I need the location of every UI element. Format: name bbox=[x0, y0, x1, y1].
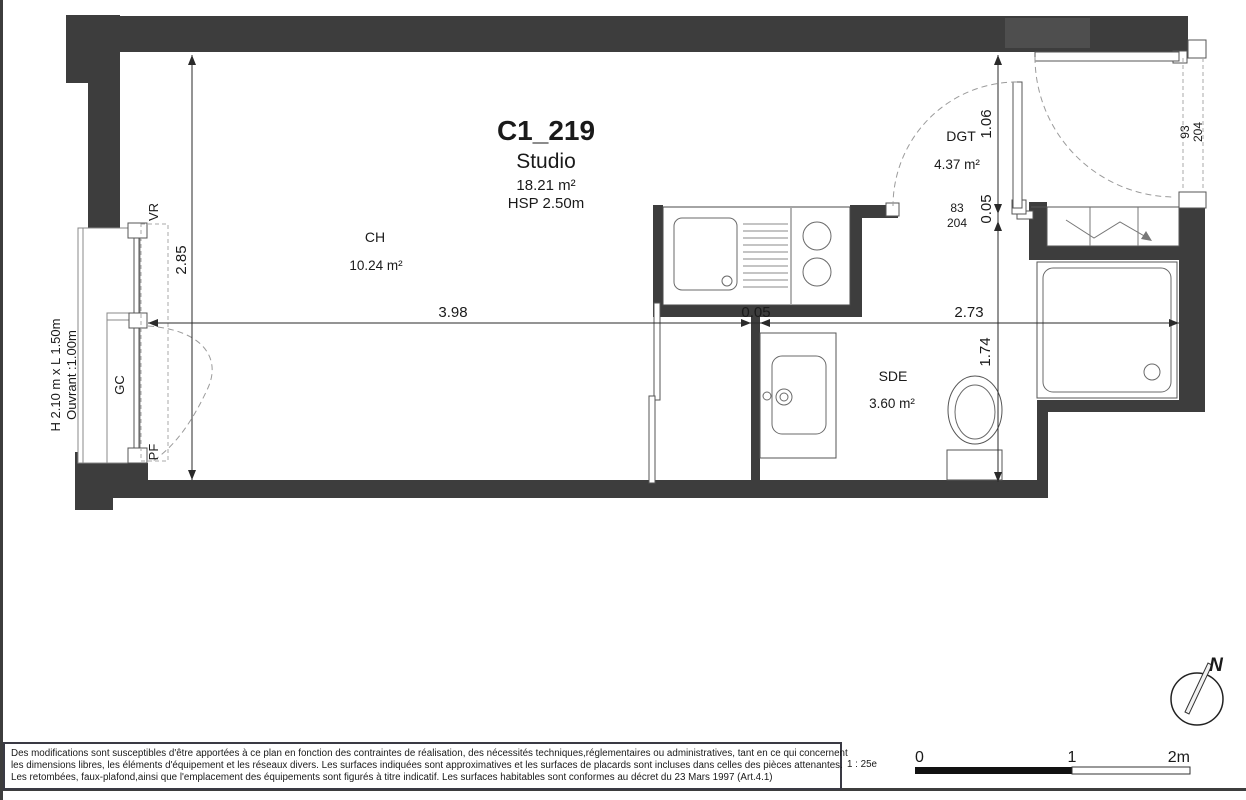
dgt-door bbox=[886, 82, 1033, 219]
dim-partition: 0.05 bbox=[741, 304, 770, 321]
closet-wall bbox=[1045, 246, 1179, 260]
dimension-labels: 2.85 3.98 0.05 2.73 1.06 0.05 1.74 bbox=[173, 109, 995, 366]
unit-id-label: C1_219 bbox=[497, 115, 595, 146]
dgt-door-width: 83 bbox=[950, 201, 964, 215]
scale-tick-2: 2m bbox=[1168, 749, 1190, 766]
floor-plan-drawing: C1_219 Studio 18.21 m² HSP 2.50m CH 10.2… bbox=[0, 0, 1246, 800]
scale-tick-1: 1 bbox=[1068, 749, 1077, 766]
door-jamb bbox=[1188, 40, 1206, 58]
sliding-door-leaf bbox=[654, 303, 660, 400]
disclaimer-line: Des modifications sont susceptibles d'êt… bbox=[11, 748, 848, 759]
title-block: C1_219 Studio 18.21 m² HSP 2.50m bbox=[497, 115, 595, 212]
entry-door-height: 204 bbox=[1191, 122, 1205, 142]
shower-tray bbox=[1037, 262, 1177, 398]
compass-needle-icon bbox=[1185, 663, 1212, 714]
north-arrow: N bbox=[1171, 655, 1224, 725]
unit-type-label: Studio bbox=[516, 150, 576, 173]
scale-block: 1 : 25e 0 1 2m bbox=[847, 749, 1190, 774]
disclaimer-line: les dimensions libres, les éléments d'éq… bbox=[11, 760, 843, 771]
dim-ch-width: 3.98 bbox=[438, 304, 467, 321]
scale-bar-solid bbox=[915, 767, 1072, 774]
dim-room-height: 2.85 bbox=[173, 245, 190, 274]
walls bbox=[66, 15, 1205, 510]
shutter-recess-dashed bbox=[141, 224, 168, 461]
compass-circle-icon bbox=[1171, 673, 1223, 725]
room-dgt-label: DGT bbox=[946, 128, 976, 144]
window-size-label: H 2.10 m x L 1.50m bbox=[48, 319, 63, 432]
wall-segment bbox=[88, 480, 1048, 498]
frame-left-line bbox=[0, 0, 3, 800]
dim-dgt-wall: 0.05 bbox=[978, 194, 995, 223]
north-label: N bbox=[1209, 655, 1224, 676]
kitchenette bbox=[663, 207, 850, 305]
toilet-bowl bbox=[948, 376, 1002, 444]
window-opening-label: Ouvrant :1.00m bbox=[64, 330, 79, 420]
wall-segment bbox=[1179, 206, 1205, 412]
room-dgt-area: 4.37 m² bbox=[934, 157, 980, 172]
balcony-divider bbox=[107, 313, 130, 320]
room-sde-area: 3.60 m² bbox=[869, 396, 915, 411]
scale-tick-0: 0 bbox=[915, 749, 924, 766]
room-ch-area: 10.24 m² bbox=[349, 258, 403, 273]
kitchen-wall bbox=[653, 205, 663, 317]
scale-bar-open bbox=[1072, 767, 1190, 774]
entry-door bbox=[1035, 40, 1206, 208]
entry-door-width: 93 bbox=[1178, 125, 1192, 139]
door-leaf bbox=[1035, 52, 1179, 61]
wall-segment bbox=[88, 52, 120, 232]
floor-plan-sheet: C1_219 Studio 18.21 m² HSP 2.50m CH 10.2… bbox=[0, 0, 1246, 800]
sde-partition bbox=[751, 307, 760, 480]
door-jamb bbox=[1179, 192, 1206, 208]
unit-area-label: 18.21 m² bbox=[516, 177, 575, 194]
wall-beam bbox=[1005, 18, 1090, 48]
shutter-label: VR bbox=[146, 203, 161, 221]
window-jamb bbox=[128, 223, 147, 238]
door-leaf bbox=[1013, 82, 1022, 208]
window-swing-arc bbox=[148, 326, 212, 461]
room-ch-label: CH bbox=[365, 229, 385, 245]
guardrail-label: GC bbox=[112, 375, 127, 395]
scale-ratio-label: 1 : 25e bbox=[847, 759, 878, 770]
french-door-label: PF bbox=[146, 444, 161, 461]
wall-segment bbox=[1037, 400, 1205, 412]
disclaimer-block: Des modifications sont susceptibles d'êt… bbox=[4, 743, 848, 789]
kitchen-wall bbox=[850, 205, 862, 317]
dim-right-width: 2.73 bbox=[954, 304, 983, 321]
dim-sde-depth: 1.74 bbox=[977, 337, 994, 366]
room-sde-label: SDE bbox=[879, 368, 908, 384]
balcony bbox=[78, 228, 140, 463]
disclaimer-line: Les retombées, faux-plafond,ainsi que l'… bbox=[11, 772, 773, 783]
dim-dgt-depth: 1.06 bbox=[978, 109, 995, 138]
dgt-door-height: 204 bbox=[947, 216, 967, 230]
wall-segment bbox=[1037, 400, 1048, 498]
sliding-doors bbox=[649, 303, 660, 483]
door-jamb bbox=[886, 203, 899, 216]
window-mullion bbox=[129, 313, 147, 328]
closet bbox=[1031, 207, 1179, 246]
ceiling-height-label: HSP 2.50m bbox=[508, 195, 584, 212]
toilet-cistern bbox=[947, 450, 1002, 480]
door-swing-arc bbox=[1035, 57, 1175, 197]
sliding-door-leaf bbox=[649, 396, 655, 483]
